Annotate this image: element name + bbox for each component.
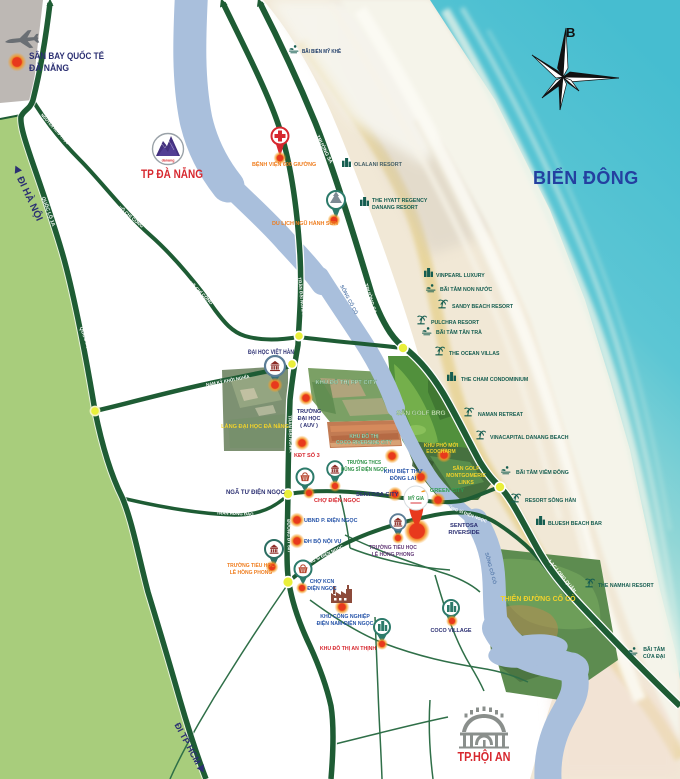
svg-text:CỬA ĐẠI: CỬA ĐẠI bbox=[643, 653, 666, 660]
svg-text:DU LỊCH NGŨ HÀNH SƠN: DU LỊCH NGŨ HÀNH SƠN bbox=[272, 220, 338, 227]
svg-text:SANDY BEACH RESORT: SANDY BEACH RESORT bbox=[452, 304, 514, 310]
svg-text:KHU CÔNG NGHIỆP: KHU CÔNG NGHIỆP bbox=[320, 612, 370, 620]
svg-text:KHU ĐÔ THỊ AN THỊNH: KHU ĐÔ THỊ AN THỊNH bbox=[320, 644, 377, 652]
svg-text:ĐẠI HỌC VIỆT HÀN: ĐẠI HỌC VIỆT HÀN bbox=[248, 347, 294, 356]
svg-text:BÃI TẮM VIÊM ĐÔNG: BÃI TẮM VIÊM ĐÔNG bbox=[516, 468, 569, 476]
svg-text:THIÊN ĐƯỜNG CỔ CÒ: THIÊN ĐƯỜNG CỔ CÒ bbox=[500, 594, 576, 603]
svg-text:THE NAMHAI RESORT: THE NAMHAI RESORT bbox=[598, 583, 654, 589]
svg-text:LÊ HỒNG PHONG: LÊ HỒNG PHONG bbox=[372, 550, 415, 558]
svg-text:VINACAPITAL DANANG BEACH: VINACAPITAL DANANG BEACH bbox=[490, 435, 569, 441]
svg-text:BỆNH VIỆN 600 GIƯỜNG: BỆNH VIỆN 600 GIƯỜNG bbox=[252, 160, 316, 168]
svg-text:TRƯỜNG TIỂU HỌC: TRƯỜNG TIỂU HỌC bbox=[227, 561, 275, 569]
svg-text:SENTOSA CITY: SENTOSA CITY bbox=[356, 492, 399, 498]
svg-text:RIVERSIDE: RIVERSIDE bbox=[448, 530, 479, 536]
svg-text:UBND P. ĐIỆN NGỌC: UBND P. ĐIỆN NGỌC bbox=[304, 516, 358, 524]
svg-text:ECOCHARM: ECOCHARM bbox=[426, 449, 455, 455]
svg-text:TRƯỜNG TIỂU HỌC: TRƯỜNG TIỂU HỌC bbox=[369, 543, 417, 551]
svg-text:BLUESH BEACH BAR: BLUESH BEACH BAR bbox=[548, 521, 602, 527]
svg-text:BÃI TẮM TÂN TRÀ: BÃI TẮM TÂN TRÀ bbox=[436, 328, 482, 336]
svg-text:danang: danang bbox=[162, 159, 175, 163]
svg-text:SÂN GOLF: SÂN GOLF bbox=[453, 465, 480, 472]
svg-text:CHỢ ĐIỆN NGỌC: CHỢ ĐIỆN NGỌC bbox=[314, 496, 360, 504]
svg-text:THE CHAM CONDOMINIUM: THE CHAM CONDOMINIUM bbox=[461, 377, 528, 383]
svg-text:KHU ĐÔ THỊ: KHU ĐÔ THỊ bbox=[349, 432, 379, 440]
svg-text:KHU BIỆT THỰ: KHU BIỆT THỰ bbox=[384, 467, 423, 475]
svg-text:RESORT SÔNG HÀN: RESORT SÔNG HÀN bbox=[525, 496, 576, 504]
svg-text:DANANG RESORT: DANANG RESORT bbox=[372, 205, 419, 211]
svg-text:LÊ HỒNG PHONG: LÊ HỒNG PHONG bbox=[230, 568, 273, 576]
svg-text:SÂN GOLF BRG: SÂN GOLF BRG bbox=[397, 408, 446, 417]
svg-text:ĐH BỘ NỘI VỤ: ĐH BỘ NỘI VỤ bbox=[304, 537, 342, 545]
svg-text:KHU ĐÔ THỊ FPT CITY: KHU ĐÔ THỊ FPT CITY bbox=[315, 378, 376, 386]
svg-text:DŨNG SĨ ĐIỆN NGỌC: DŨNG SĨ ĐIỆN NGỌC bbox=[341, 465, 387, 473]
svg-text:TRƯỜNG: TRƯỜNG bbox=[297, 407, 321, 415]
svg-text:NAMAN RETREAT: NAMAN RETREAT bbox=[478, 412, 524, 418]
svg-text:KĐT SỐ 3: KĐT SỐ 3 bbox=[294, 452, 320, 459]
svg-text:KHU PHỐ MỚI: KHU PHỐ MỚI bbox=[424, 441, 459, 449]
svg-text:NGÃ TƯ ĐIỆN NGỌC: NGÃ TƯ ĐIỆN NGỌC bbox=[226, 487, 285, 496]
svg-text:BÃI BIỂN MỸ KHÊ: BÃI BIỂN MỸ KHÊ bbox=[302, 47, 341, 55]
svg-text:B: B bbox=[566, 25, 575, 40]
svg-text:ĐẠI HỌC: ĐẠI HỌC bbox=[298, 416, 321, 422]
svg-text:COCO VILLAGE: COCO VILLAGE bbox=[430, 628, 471, 634]
svg-text:SÂN BAY QUỐC TẾ: SÂN BAY QUỐC TẾ bbox=[29, 50, 105, 62]
svg-text:SENTOSA: SENTOSA bbox=[450, 523, 479, 529]
svg-text:TRƯỜNG THCS: TRƯỜNG THCS bbox=[347, 458, 381, 466]
svg-text:PULCHRA RESORT: PULCHRA RESORT bbox=[431, 320, 480, 326]
svg-text:BÃI TẮM NON NƯỚC: BÃI TẮM NON NƯỚC bbox=[440, 285, 492, 293]
svg-text:THE OCEAN VILLAS: THE OCEAN VILLAS bbox=[449, 351, 500, 357]
svg-text:MỸ GIA: MỸ GIA bbox=[408, 495, 424, 502]
svg-text:( AUV ): ( AUV ) bbox=[300, 423, 318, 429]
svg-text:CHỢ KCN: CHỢ KCN bbox=[310, 579, 335, 585]
svg-text:OLALANI RESORT: OLALANI RESORT bbox=[354, 162, 403, 168]
svg-text:TP ĐÀ NẴNG: TP ĐÀ NẴNG bbox=[141, 168, 203, 181]
svg-text:LÀNG ĐẠI HỌC ĐÀ NẵNG: LÀNG ĐẠI HỌC ĐÀ NẵNG bbox=[221, 423, 289, 430]
svg-text:ĐIỆN NAM-ĐIỆN NGỌC: ĐIỆN NAM-ĐIỆN NGỌC bbox=[317, 619, 374, 627]
svg-text:MONTGOMERIE: MONTGOMERIE bbox=[446, 473, 486, 479]
svg-text:LINKS: LINKS bbox=[458, 480, 474, 486]
svg-text:THE HYATT REGENCY: THE HYATT REGENCY bbox=[372, 198, 428, 204]
svg-text:TP.HỘI AN: TP.HỘI AN bbox=[458, 749, 511, 764]
svg-text:GREEN CITY: GREEN CITY bbox=[430, 488, 464, 494]
svg-text:ĐIỆN NGỌC: ĐIỆN NGỌC bbox=[307, 584, 337, 592]
svg-text:VINPEARL LUXURY: VINPEARL LUXURY bbox=[436, 273, 485, 279]
svg-text:BÃI TẮM: BÃI TẮM bbox=[643, 645, 665, 653]
svg-text:BIỂN ĐÔNG: BIỂN ĐÔNG bbox=[533, 167, 639, 188]
svg-text:ĐÀ NẴNG: ĐÀ NẴNG bbox=[29, 62, 69, 74]
svg-text:COCO RIVERSIDE CITY: COCO RIVERSIDE CITY bbox=[336, 440, 393, 446]
svg-text:ĐỒNG LAI: ĐỒNG LAI bbox=[390, 475, 417, 482]
